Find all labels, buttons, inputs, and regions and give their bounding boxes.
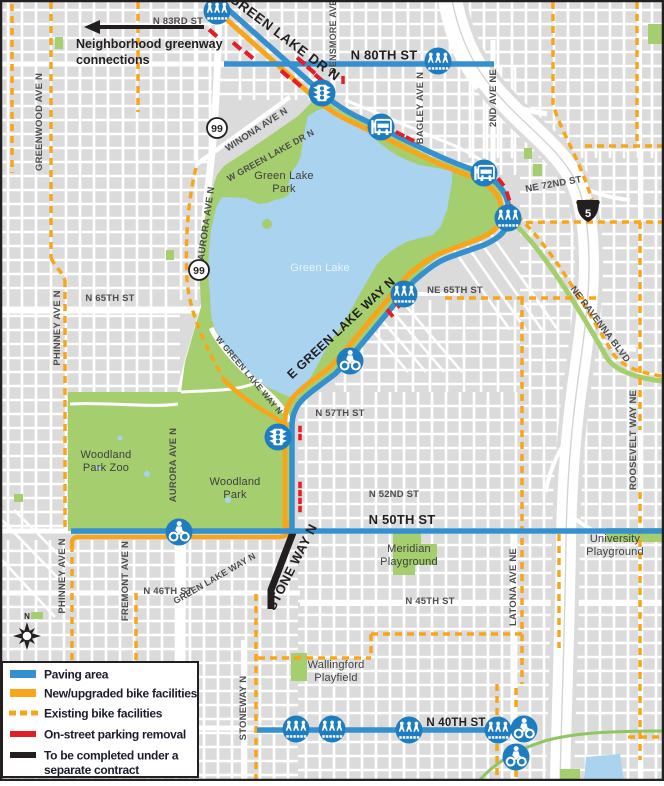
svg-text:N 52ND ST: N 52ND ST <box>369 489 419 500</box>
svg-text:Green Lake: Green Lake <box>290 262 349 274</box>
svg-text:PHINNEY AVE N: PHINNEY AVE N <box>52 290 63 365</box>
svg-text:N 50TH ST: N 50TH ST <box>369 512 436 527</box>
svg-text:AURORA AVE N: AURORA AVE N <box>168 428 179 502</box>
svg-text:N 80TH ST: N 80TH ST <box>351 48 418 63</box>
svg-text:STONEWAY N: STONEWAY N <box>238 676 249 741</box>
svg-text:GREENWOOD AVE N: GREENWOOD AVE N <box>34 73 45 171</box>
svg-text:N 40TH ST: N 40TH ST <box>426 717 485 729</box>
svg-text:LATONA AVE NE: LATONA AVE NE <box>508 548 519 626</box>
svg-text:2ND AVE NE: 2ND AVE NE <box>488 69 499 127</box>
svg-text:N 57TH ST: N 57TH ST <box>315 408 364 419</box>
svg-text:Woodland: Woodland <box>81 449 132 461</box>
svg-text:5: 5 <box>585 208 591 220</box>
svg-text:FREMONT AVE N: FREMONT AVE N <box>120 541 131 621</box>
svg-text:Wallingford: Wallingford <box>308 659 365 671</box>
svg-text:Park: Park <box>223 489 247 501</box>
svg-text:PHINNEY AVE N: PHINNEY AVE N <box>57 538 68 613</box>
svg-text:connections: connections <box>76 53 150 67</box>
svg-text:BAGLEY AVE N: BAGLEY AVE N <box>415 72 426 144</box>
svg-text:Park Zoo: Park Zoo <box>83 462 129 474</box>
svg-text:To be completed under a: To be completed under a <box>44 749 179 763</box>
svg-text:99: 99 <box>193 265 205 277</box>
svg-text:N: N <box>24 612 30 621</box>
svg-text:Playground: Playground <box>380 556 438 568</box>
svg-text:Paving area: Paving area <box>44 668 109 682</box>
svg-text:On-street parking removal: On-street parking removal <box>44 728 186 742</box>
svg-text:N 65TH ST: N 65TH ST <box>85 293 134 304</box>
svg-text:University: University <box>590 533 641 545</box>
svg-text:Woodland: Woodland <box>210 476 261 488</box>
svg-text:Neighborhood greenway: Neighborhood greenway <box>76 37 223 51</box>
svg-text:New/upgraded bike facilities: New/upgraded bike facilities <box>44 687 198 701</box>
svg-text:99: 99 <box>211 123 223 135</box>
svg-text:separate contract: separate contract <box>44 763 139 777</box>
svg-text:Existing bike facilities: Existing bike facilities <box>44 707 163 721</box>
svg-text:N 45TH ST: N 45TH ST <box>405 596 454 607</box>
svg-text:Playground: Playground <box>586 546 644 558</box>
svg-text:Green Lake: Green Lake <box>254 170 313 182</box>
svg-text:Meridian: Meridian <box>387 543 431 555</box>
svg-text:ROOSEVELT WAY NE: ROOSEVELT WAY NE <box>628 390 639 490</box>
svg-text:Playfield: Playfield <box>314 672 357 684</box>
svg-text:NE 65TH ST: NE 65TH ST <box>427 285 483 296</box>
svg-text:Park: Park <box>272 183 296 195</box>
